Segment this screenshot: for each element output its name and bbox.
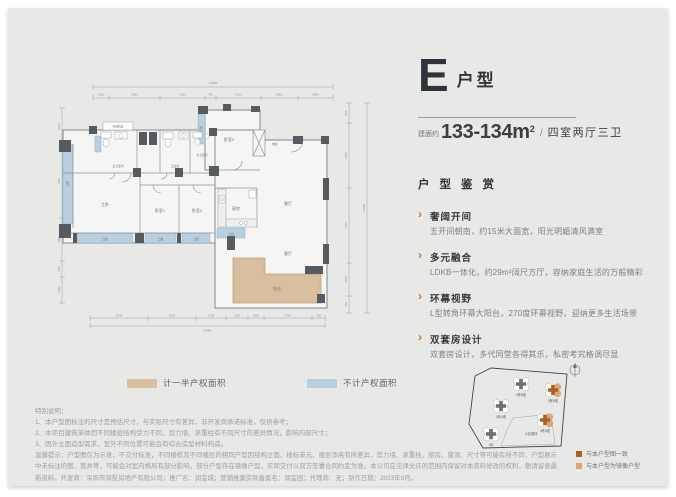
- dims-right: [346, 103, 370, 313]
- room-label-ac: 空调机位: [112, 125, 123, 129]
- area-value: 133-134m: [441, 122, 530, 142]
- area-info: 建面约 133-134m 2 / 四室两厅三卫: [418, 122, 623, 142]
- building-label: 3栋A座: [540, 428, 551, 433]
- dim: 2600: [276, 93, 283, 97]
- unit-type-letter: E: [418, 54, 448, 96]
- dim: 3150: [235, 93, 242, 97]
- feature-desc: L型转角环幕大阳台，270度环幕视野，迎纳更多生活场景: [430, 308, 663, 319]
- room-label-bed3: 卧室3: [224, 136, 235, 142]
- siteplan-legend: 与本户型图一致 与本户型为镜像户型: [576, 449, 640, 473]
- brochure-panel: 14800 1150 3600 3200 750 3150 2600 2450 …: [8, 8, 668, 486]
- feature-title: 环幕视野: [430, 291, 663, 305]
- feature-item: › 双套房设计 双套房设计，多代同堂各得其乐，私密考究格调尽显: [418, 332, 663, 360]
- dim: 3600: [131, 93, 138, 97]
- dim: 1500: [57, 286, 61, 293]
- unit-title: E 户型: [418, 54, 497, 96]
- room-label-balcony: 阳台: [273, 285, 281, 291]
- bay-label: 凸窗: [228, 232, 234, 236]
- legend-half-property: 计一半产权面积: [127, 377, 226, 389]
- bullet-chevron-icon: ›: [418, 207, 422, 221]
- bay-label: 凸窗: [102, 237, 108, 241]
- floorplan: 14800 1150 3600 3200 750 3150 2600 2450 …: [55, 78, 400, 378]
- notes-line: 2、本项目建筑单体因不同楼层结构受力不同，剪力墙、承重柱有不同尺寸的差异情况，影…: [35, 428, 375, 439]
- legend-swatch-blue: [307, 379, 337, 388]
- bay-label: 凸窗: [199, 126, 203, 132]
- building-cluster: [493, 400, 509, 413]
- dim: 1450: [344, 276, 348, 283]
- dim-right-total: 11550: [362, 204, 366, 212]
- legend-label: 不计产权面积: [343, 377, 397, 389]
- room-label-master-bed: 主卧: [101, 201, 109, 207]
- dim-bottom-total: 14800: [203, 328, 212, 332]
- legend-swatch-tan: [127, 379, 157, 388]
- building-label: 1栋: [489, 442, 495, 447]
- feature-item: › 奢阔开间 五开间朝南，约15米大面宽，阳光明媚清风满室: [418, 209, 663, 237]
- feature-item: › 多元融合 LDKB一体化，约29m²阔尺方厅，容纳家庭生活的万般精彩: [418, 250, 663, 278]
- siteplan-legend-row: 与本户型图一致: [576, 449, 640, 458]
- legend-label: 与本户型为镜像户型: [586, 461, 640, 470]
- dim: 750: [208, 93, 213, 97]
- room-label-master-bath: 主卫生间: [112, 164, 123, 168]
- bullet-chevron-icon: ›: [418, 330, 422, 344]
- building-cluster-highlighted: [537, 414, 553, 427]
- building-label: 3栋B座: [548, 398, 559, 403]
- dim: 2800: [169, 313, 176, 317]
- feature-title: 双套房设计: [430, 332, 663, 346]
- feature-desc: 五开间朝南，约15米大面宽，阳光明媚清风满室: [430, 226, 663, 237]
- bay-label: 凸窗: [193, 237, 199, 241]
- disclaimer-text: 温馨提示：户型图仅为示意，不交付标准，不同楼栋及不同楼层的相同户型因结构立面、楼…: [35, 450, 557, 484]
- legend-swatch-mirror: [576, 463, 582, 469]
- bullet-chevron-icon: ›: [418, 289, 422, 303]
- title-divider: [418, 117, 576, 118]
- siteplan-legend-row: 与本户型为镜像户型: [576, 461, 640, 470]
- area-superscript: 2: [530, 124, 535, 134]
- legend-swatch-match: [576, 451, 582, 457]
- dim: 875: [344, 110, 348, 115]
- room-label-bed1: 卧室1: [155, 207, 166, 213]
- dim: 4250: [57, 178, 61, 185]
- unit-type-suffix: 户型: [457, 66, 497, 96]
- dim: 1750: [208, 313, 215, 317]
- notes-line: 1、本户型图标注的尺寸是预估尺寸，与实际尺寸有差异，非开发商承诺标准，仅供参考；: [35, 417, 375, 428]
- dim: 2750: [285, 313, 292, 317]
- dim: 900: [253, 313, 258, 317]
- brochure-page: 14800 1150 3600 3200 750 3150 2600 2450 …: [0, 0, 676, 497]
- dim: 3300: [344, 222, 348, 229]
- dim: 2450: [312, 93, 319, 97]
- dim: 750: [316, 313, 321, 317]
- layout-label: 四室两厅三卫: [548, 124, 623, 142]
- notes-title: 特别说明：: [35, 406, 375, 417]
- bullet-chevron-icon: ›: [418, 248, 422, 262]
- room-label-bath: 卫生间: [171, 164, 180, 168]
- building-label: 2栋B座: [516, 392, 527, 397]
- appreciation-section: 户型鉴赏 › 奢阔开间 五开间朝南，约15米大面宽，阳光明媚清风满室 › 多元融…: [418, 176, 663, 373]
- dim-top-total: 14800: [209, 81, 218, 85]
- dim: 2850: [344, 152, 348, 159]
- siteplan: 小区园林 2栋B座 2栋A座 1栋: [463, 360, 583, 455]
- dim: 3200: [179, 93, 186, 97]
- area-prefix: 建面约: [418, 129, 439, 142]
- building-cluster: [513, 378, 529, 391]
- building-cluster: [483, 428, 499, 441]
- room-label-shaft: 电井: [272, 142, 278, 146]
- legend-label: 与本户型图一致: [586, 449, 628, 458]
- feature-desc: 双套房设计，多代同堂各得其乐，私密考究格调尽显: [430, 349, 663, 360]
- building-cluster-highlighted: [545, 384, 561, 397]
- legend-no-property: 不计产权面积: [307, 377, 397, 389]
- dim: 1150: [98, 93, 105, 97]
- feature-item: › 环幕视野 L型转角环幕大阳台，270度环幕视野，迎纳更多生活场景: [418, 291, 663, 319]
- dim: 1300: [234, 313, 241, 317]
- site-center-label: 小区园林: [525, 431, 539, 436]
- bay-label: 凸窗: [158, 237, 164, 241]
- special-notes: 特别说明： 1、本户型图标注的尺寸是预估尺寸，与实际尺寸有差异，非开发商承诺标准…: [35, 406, 375, 450]
- room-label-second-bath: 次卫生间: [196, 153, 207, 157]
- legend-label: 计一半产权面积: [163, 377, 226, 389]
- notes-line: 3、因外立面造型需求，室外不同位置可能会有综合造型材料构造。: [35, 439, 375, 450]
- area-slash: /: [540, 128, 543, 142]
- bay-label: 凸窗: [65, 181, 69, 187]
- dim: 2150: [57, 123, 61, 130]
- dim: 750: [344, 302, 348, 307]
- dim: 950: [57, 266, 61, 271]
- feature-title: 多元融合: [430, 250, 663, 264]
- room-label-kitchen: 厨房: [232, 205, 240, 211]
- compass-icon: [570, 363, 580, 377]
- building-label: 2栋A座: [496, 414, 507, 419]
- room-label-bed2: 卧室2: [192, 207, 203, 213]
- feature-desc: LDKB一体化，约29m²阔尺方厅，容纳家庭生活的万般精彩: [430, 267, 663, 278]
- appreciation-title: 户型鉴赏: [418, 176, 663, 192]
- dim: 3340: [116, 313, 123, 317]
- room-label-living: 客厅: [284, 250, 292, 256]
- room-label-dining: 餐厅: [284, 200, 292, 206]
- feature-title: 奢阔开间: [430, 209, 663, 223]
